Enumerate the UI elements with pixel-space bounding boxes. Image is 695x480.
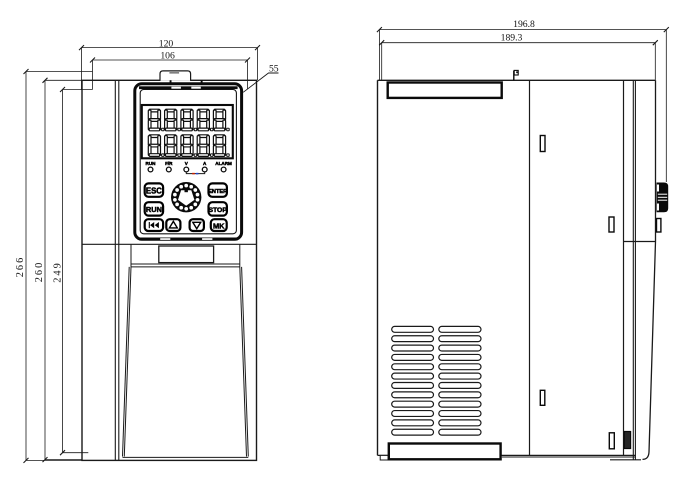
svg-text:249: 249 xyxy=(52,263,63,283)
svg-text:MK: MK xyxy=(213,222,225,231)
svg-text:RUN: RUN xyxy=(146,161,157,166)
svg-text:266: 266 xyxy=(15,258,26,278)
svg-text:106: 106 xyxy=(160,51,175,62)
svg-text:ALARM: ALARM xyxy=(215,161,232,166)
svg-text:ENTER: ENTER xyxy=(208,189,227,195)
svg-text:55: 55 xyxy=(269,64,279,75)
svg-text:189.3: 189.3 xyxy=(501,33,523,44)
svg-text:ESC: ESC xyxy=(146,186,162,195)
svg-text:260: 260 xyxy=(34,263,45,283)
svg-text:STOP: STOP xyxy=(209,207,228,214)
svg-text:196.8: 196.8 xyxy=(513,19,535,30)
svg-text:RUN: RUN xyxy=(146,205,162,214)
svg-text:F/R: F/R xyxy=(165,161,173,166)
svg-text:120: 120 xyxy=(159,38,174,49)
